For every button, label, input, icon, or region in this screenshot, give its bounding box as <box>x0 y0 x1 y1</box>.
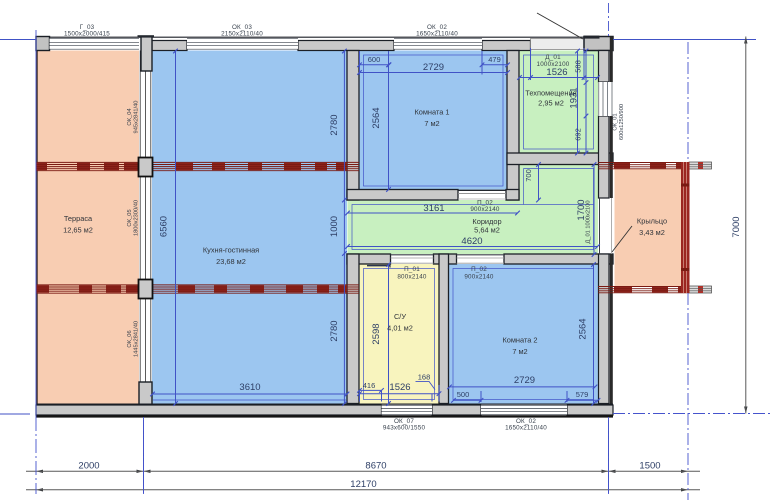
svg-text:943x600/1550: 943x600/1550 <box>383 425 426 432</box>
svg-text:П_02: П_02 <box>471 266 487 273</box>
svg-text:1000: 1000 <box>329 216 340 237</box>
svg-text:5,64 м2: 5,64 м2 <box>474 226 500 235</box>
svg-text:Д_01: Д_01 <box>545 54 561 61</box>
svg-text:945x2841/40: 945x2841/40 <box>134 101 140 134</box>
svg-text:2598: 2598 <box>371 323 382 344</box>
svg-text:1800x2300/40: 1800x2300/40 <box>134 200 140 236</box>
svg-text:ОК_04: ОК_04 <box>127 108 133 125</box>
svg-text:3,43 м2: 3,43 м2 <box>639 228 665 237</box>
svg-text:700: 700 <box>524 169 533 182</box>
svg-text:12170: 12170 <box>350 479 376 490</box>
svg-text:416: 416 <box>363 381 376 390</box>
svg-text:2780: 2780 <box>329 320 340 341</box>
svg-text:7000: 7000 <box>731 216 742 237</box>
svg-text:1000x2100: 1000x2100 <box>537 61 570 68</box>
svg-text:2150x2110/40: 2150x2110/40 <box>221 31 263 38</box>
svg-text:1931: 1931 <box>569 87 580 108</box>
svg-text:ОК_06: ОК_06 <box>127 330 133 347</box>
svg-text:1650x2110/40: 1650x2110/40 <box>416 31 458 38</box>
svg-text:Кухня-гостинная: Кухня-гостинная <box>203 246 259 255</box>
svg-text:С/У: С/У <box>394 312 406 321</box>
svg-text:600x1250/900: 600x1250/900 <box>619 104 625 140</box>
svg-text:Крыльцо: Крыльцо <box>637 217 667 226</box>
svg-text:1500: 1500 <box>639 461 660 472</box>
svg-text:4620: 4620 <box>461 236 482 247</box>
svg-text:1650x2110/40: 1650x2110/40 <box>505 425 547 432</box>
svg-text:588: 588 <box>574 60 583 73</box>
svg-text:7 м2: 7 м2 <box>512 347 527 356</box>
svg-text:1526: 1526 <box>389 382 410 393</box>
svg-text:2729: 2729 <box>423 62 444 73</box>
svg-text:500: 500 <box>457 390 470 399</box>
svg-text:1500x2000/415: 1500x2000/415 <box>64 31 110 38</box>
svg-text:Д_01 1000x2100: Д_01 1000x2100 <box>586 200 592 243</box>
svg-text:479: 479 <box>488 55 501 64</box>
svg-text:ОК_05: ОК_05 <box>127 209 133 226</box>
svg-text:ОК_01: ОК_01 <box>613 113 619 130</box>
svg-text:П_01: П_01 <box>404 266 420 273</box>
svg-text:8670: 8670 <box>365 461 386 472</box>
svg-text:4,01 м2: 4,01 м2 <box>387 324 413 333</box>
svg-text:692: 692 <box>574 128 583 141</box>
svg-text:1445x2841/40: 1445x2841/40 <box>134 321 140 357</box>
svg-text:3161: 3161 <box>423 203 444 214</box>
svg-text:900x2140: 900x2140 <box>470 206 500 213</box>
svg-text:7 м2: 7 м2 <box>424 119 439 128</box>
svg-text:1526: 1526 <box>546 67 567 78</box>
svg-text:600: 600 <box>368 55 381 64</box>
svg-text:12,65 м2: 12,65 м2 <box>63 226 93 235</box>
svg-text:3610: 3610 <box>239 382 260 393</box>
svg-text:579: 579 <box>576 390 589 399</box>
svg-text:2564: 2564 <box>578 318 589 339</box>
svg-text:2000: 2000 <box>78 461 99 472</box>
svg-text:2,95 м2: 2,95 м2 <box>538 99 564 108</box>
svg-text:800x2140: 800x2140 <box>397 274 427 281</box>
svg-text:168: 168 <box>418 373 431 382</box>
svg-text:900x2140: 900x2140 <box>464 274 494 281</box>
svg-text:2564: 2564 <box>371 107 382 128</box>
svg-text:Комната 2: Комната 2 <box>502 336 537 345</box>
svg-text:Комната 1: Комната 1 <box>414 108 449 117</box>
svg-text:6560: 6560 <box>159 216 170 237</box>
svg-text:Терраса: Терраса <box>64 214 93 223</box>
svg-text:2780: 2780 <box>329 114 340 135</box>
svg-text:2729: 2729 <box>514 375 535 386</box>
svg-text:23,68 м2: 23,68 м2 <box>216 257 246 266</box>
